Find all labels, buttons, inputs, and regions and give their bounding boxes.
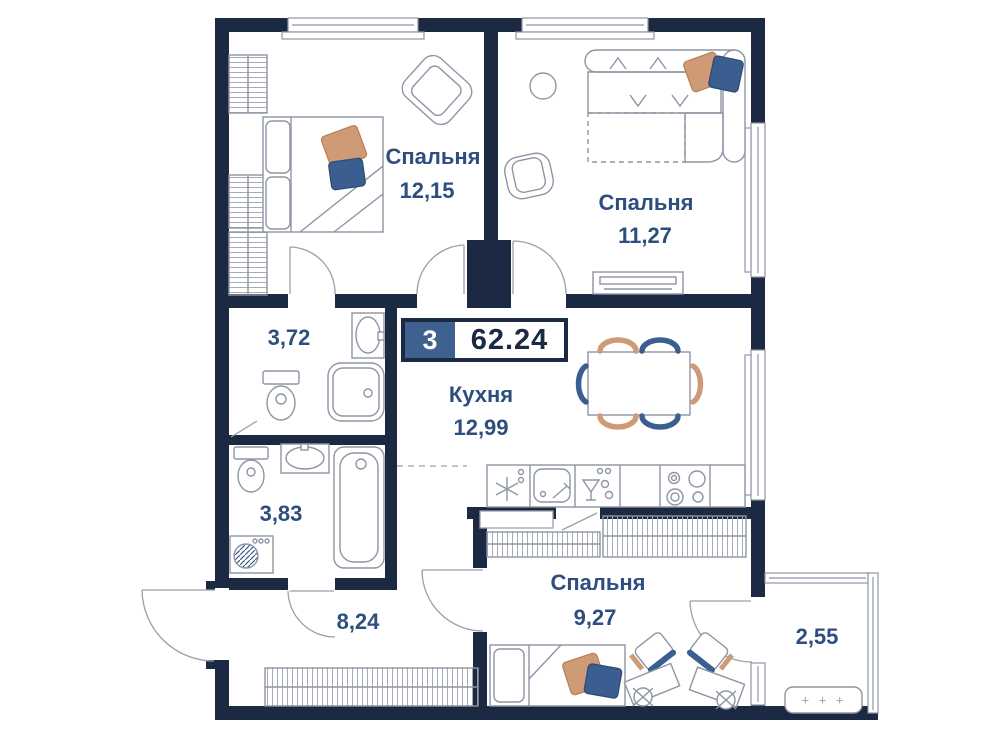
toilet-bathroom2 xyxy=(234,447,268,492)
bedroom3-wardrobe-left xyxy=(487,532,600,557)
planter-symbols: + + + xyxy=(802,693,847,708)
bedroom2-door xyxy=(513,241,566,294)
floorplan-page: Спальня 12,15 Спальня 11,27 Кухня 12,99 … xyxy=(0,0,1000,750)
wardrobe-bedroom1 xyxy=(229,55,267,295)
bedroom1-door-right xyxy=(417,245,464,294)
hall-wardrobe xyxy=(265,668,478,706)
kitchen-counter xyxy=(487,465,745,507)
tv-stand xyxy=(593,272,683,294)
bedroom3-door xyxy=(422,570,483,631)
pouf xyxy=(530,73,556,99)
bathroom2-area-label: 3,83 xyxy=(260,503,303,525)
bedroom1-name-label: Спальня xyxy=(385,146,480,168)
window-sill xyxy=(745,128,751,272)
entry-door xyxy=(142,590,215,661)
bedroom2-name-label: Спальня xyxy=(598,192,693,214)
kitchen-niche xyxy=(480,511,597,530)
floorplan-graphics xyxy=(0,0,1000,750)
furniture xyxy=(229,50,862,713)
window-top-bedroom1 xyxy=(282,18,424,39)
washbasin-bathroom2 xyxy=(281,444,329,473)
bedroom2-area-label: 11,27 xyxy=(618,225,672,247)
shower-bathroom1 xyxy=(328,363,384,421)
armchair-bedroom1 xyxy=(397,51,476,130)
window-sill xyxy=(745,355,751,495)
window-right-bedroom2 xyxy=(745,123,765,277)
kitchen-area-label: 12,99 xyxy=(453,417,508,439)
toilet-bathroom1 xyxy=(263,371,299,420)
bathroom1-door xyxy=(231,421,257,437)
window-right-bedroom3 xyxy=(751,663,765,705)
window-sill xyxy=(282,32,424,39)
balcony-area-label: 2,55 xyxy=(796,626,839,648)
window-sill xyxy=(516,32,654,39)
bathroom2-door xyxy=(288,591,335,637)
bathroom1-area-label: 3,72 xyxy=(268,327,311,349)
window-right-kitchen xyxy=(745,350,765,500)
bedroom3-name-label: Спальня xyxy=(550,572,645,594)
window-top-bedroom2 xyxy=(516,18,654,39)
double-bed xyxy=(263,117,383,232)
rooms-count-badge: 3 xyxy=(405,322,455,358)
bedroom3-area-label: 9,27 xyxy=(574,607,617,629)
dining-table xyxy=(588,352,690,415)
total-area-badge: 62.24 xyxy=(455,322,564,358)
washing-machine xyxy=(230,536,273,573)
washbasin-bathroom1 xyxy=(352,313,384,358)
apartment-badge: 3 62.24 xyxy=(401,318,568,362)
bedroom1-area-label: 12,15 xyxy=(399,180,454,202)
bedroom1-door-left xyxy=(290,247,335,294)
hallway-area-label: 8,24 xyxy=(337,611,380,633)
desk-chair-bedroom2 xyxy=(502,151,556,202)
kitchen-name-label: Кухня xyxy=(449,384,513,406)
bathtub xyxy=(334,447,384,568)
bedroom3-wardrobe-right xyxy=(603,516,746,557)
study-chair-right xyxy=(688,631,735,675)
